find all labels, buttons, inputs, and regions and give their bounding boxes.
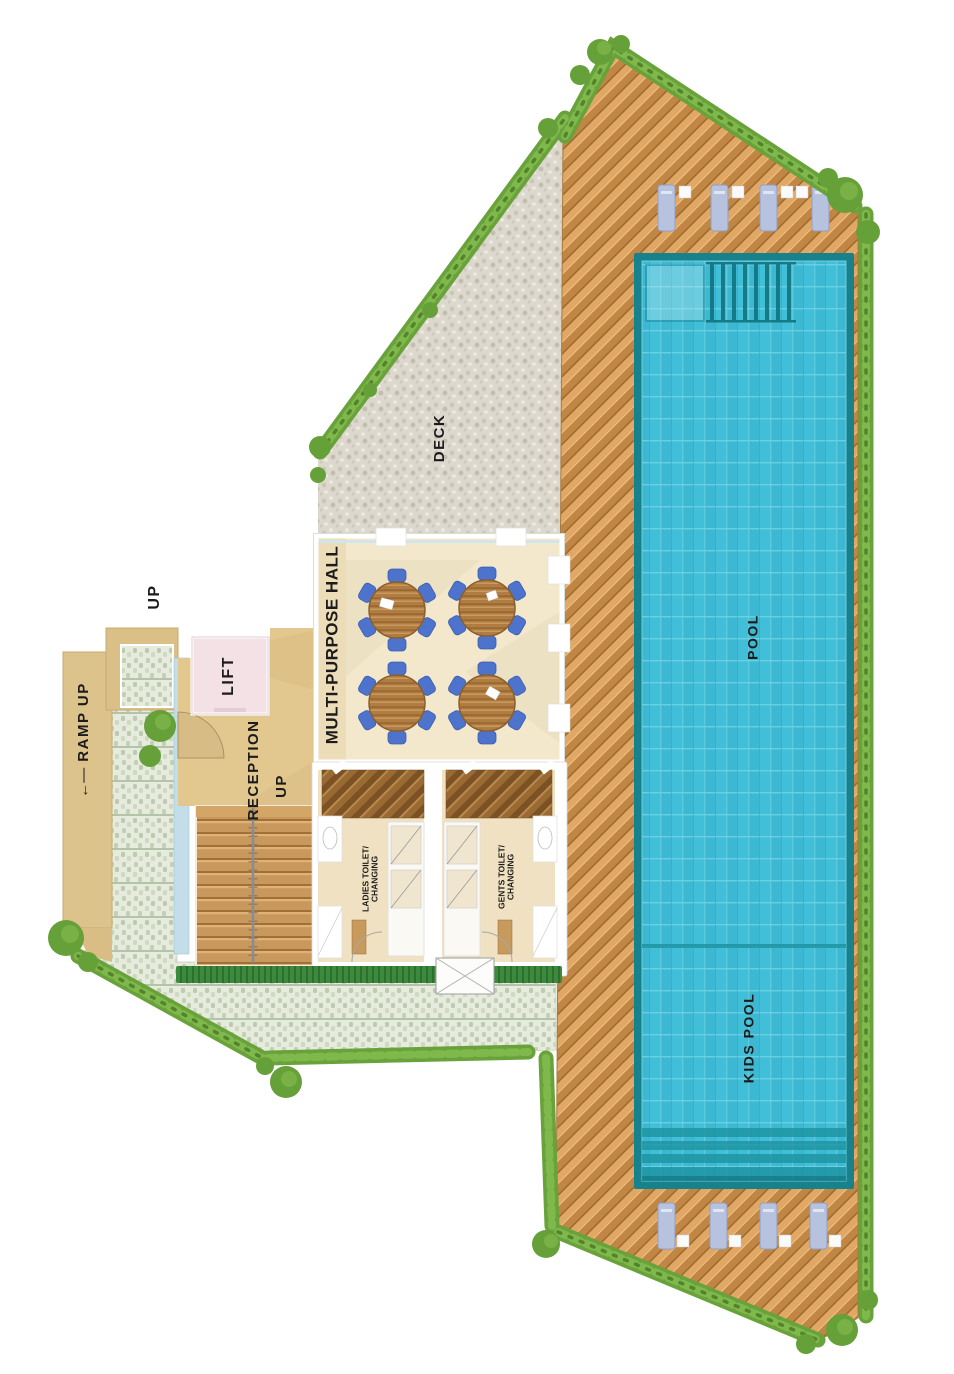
label-kids-pool: KIDS POOL bbox=[741, 993, 756, 1084]
lockers bbox=[322, 770, 424, 818]
lift-door bbox=[214, 708, 246, 712]
label-deck: DECK bbox=[432, 414, 449, 463]
label-lift: LIFT bbox=[220, 656, 238, 696]
multi-purpose-hall bbox=[314, 528, 571, 765]
label-multi-purpose-hall: MULTI-PURPOSE HALL bbox=[324, 546, 343, 745]
toilets-block bbox=[312, 760, 567, 976]
label-ladies-toilet: LADIES TOILET/ CHANGING bbox=[362, 846, 381, 912]
label-gents-toilet: GENTS TOILET/ CHANGING bbox=[498, 845, 517, 909]
pool-divider bbox=[642, 944, 846, 948]
kids-pool-steps bbox=[642, 1128, 846, 1181]
label-up-inner: UP bbox=[274, 774, 291, 798]
label-ramp-up: ←—RAMP UP bbox=[76, 682, 93, 797]
ramp-direction-arrow: ←— bbox=[75, 762, 92, 798]
floor-plan-canvas: UP ←—RAMP UP LIFT RECEPTION UP MULTI-PUR… bbox=[0, 0, 954, 1374]
label-reception: RECEPTION bbox=[246, 719, 263, 820]
staircase bbox=[196, 806, 314, 966]
planting-strip bbox=[176, 966, 562, 983]
lockers bbox=[446, 770, 552, 818]
pool-entry-shelf bbox=[646, 265, 704, 321]
label-up-top: UP bbox=[146, 584, 164, 609]
label-pool: POOL bbox=[745, 614, 760, 660]
floor-plan-graphic bbox=[0, 0, 954, 1374]
utility-box bbox=[436, 958, 494, 994]
